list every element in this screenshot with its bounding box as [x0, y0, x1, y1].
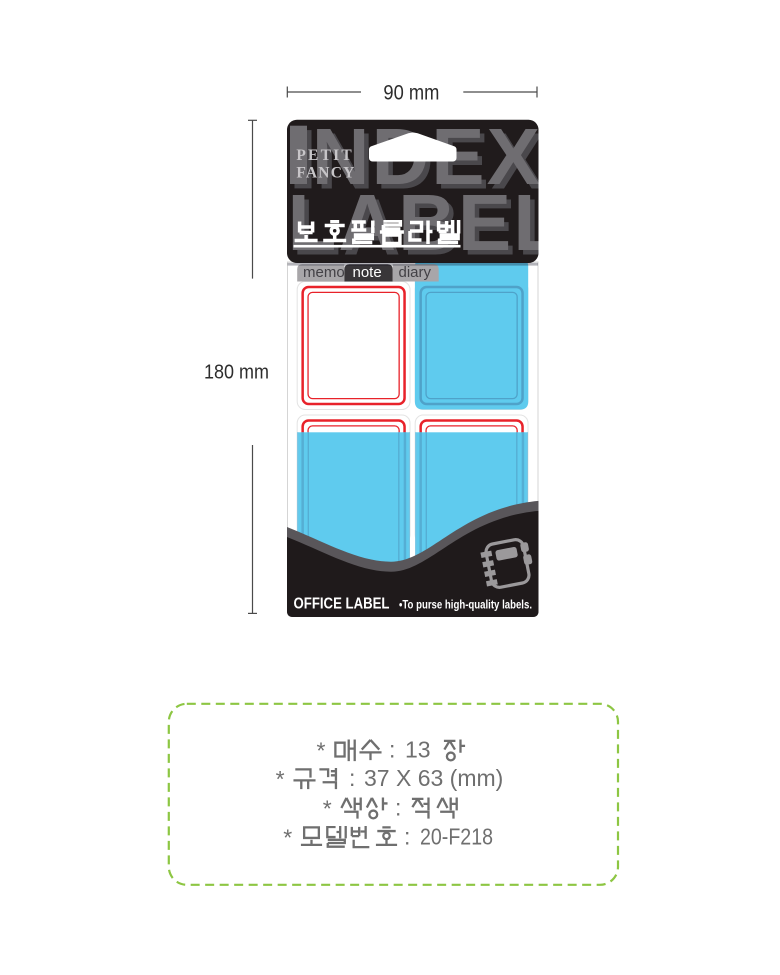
svg-text::: :	[349, 765, 355, 791]
svg-text:note: note	[353, 264, 382, 281]
svg-text:180 mm: 180 mm	[204, 360, 269, 383]
svg-text::: :	[404, 824, 410, 850]
svg-text:90 mm: 90 mm	[383, 80, 439, 104]
svg-text:diary: diary	[399, 264, 432, 281]
svg-text:37 X 63 (mm): 37 X 63 (mm)	[364, 765, 503, 791]
svg-text:20-F218: 20-F218	[420, 824, 493, 850]
svg-text:PETIT: PETIT	[296, 147, 354, 164]
svg-text:13: 13	[405, 737, 431, 763]
svg-text:•To purse high-quality labels.: •To purse high-quality labels.	[399, 598, 532, 612]
svg-text:memo: memo	[303, 264, 345, 281]
svg-text:*: *	[317, 738, 326, 764]
svg-text:*: *	[276, 766, 285, 792]
svg-text::: :	[389, 737, 395, 763]
svg-text:*: *	[283, 825, 292, 851]
svg-text:*: *	[323, 796, 332, 822]
svg-text::: :	[395, 795, 401, 821]
svg-text:LABEL: LABEL	[288, 178, 565, 267]
svg-text:OFFICE LABEL: OFFICE LABEL	[294, 596, 390, 613]
svg-text:FANCY: FANCY	[296, 165, 355, 182]
